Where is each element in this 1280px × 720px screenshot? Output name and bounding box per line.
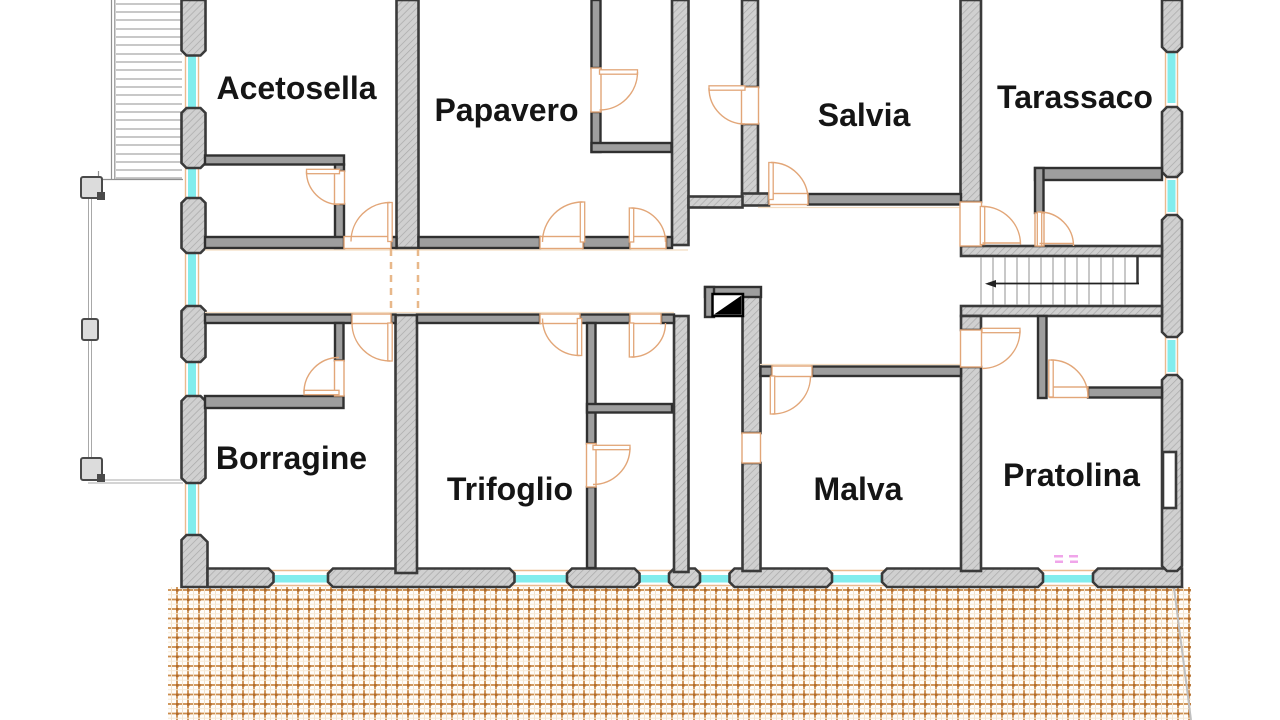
svg-text:Salvia: Salvia xyxy=(818,97,911,133)
svg-text:Acetosella: Acetosella xyxy=(216,70,376,106)
svg-text:Tarassaco: Tarassaco xyxy=(997,79,1153,115)
svg-text:Papavero: Papavero xyxy=(434,92,578,128)
svg-text:Trifoglio: Trifoglio xyxy=(447,471,573,507)
svg-text:Malva: Malva xyxy=(814,471,903,507)
svg-text:Pratolina: Pratolina xyxy=(1003,457,1140,493)
svg-text:Borragine: Borragine xyxy=(216,440,367,476)
